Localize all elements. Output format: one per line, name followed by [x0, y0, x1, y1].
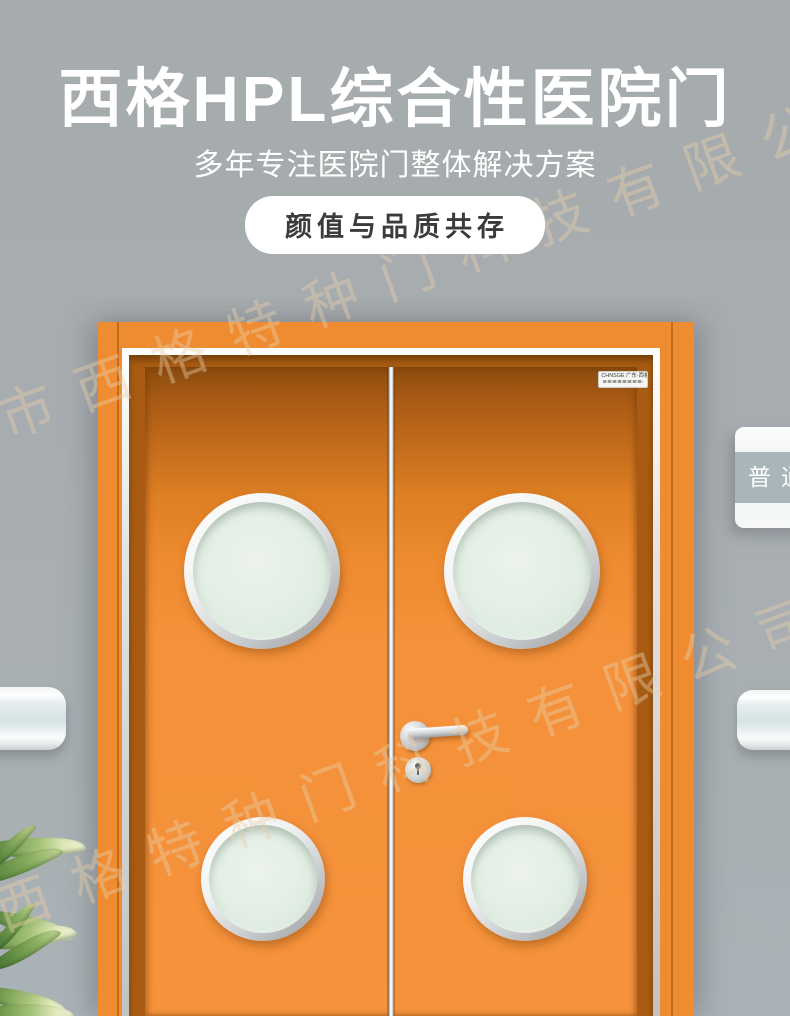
page-title: 西格HPL综合性医院门 — [0, 48, 790, 140]
brand-plate: CHNSGE 广东·西格 — [598, 371, 648, 388]
plant — [0, 826, 122, 1016]
page-subtitle: 多年专注医院门整体解决方案 — [0, 140, 790, 184]
window-glass — [471, 825, 579, 933]
frame-groove-right — [671, 322, 673, 1016]
door-jamb — [129, 355, 653, 1016]
poster-canvas: 西格HPL综合性医院门 多年专注医院门整体解决方案 颜值与品质共存 CHNSGE… — [0, 0, 790, 1016]
quality-badge: 颜值与品质共存 — [245, 196, 545, 254]
room-sign-label: 普通 — [735, 452, 790, 503]
porthole-window-top-right — [444, 493, 600, 649]
porthole-window-bottom-right — [463, 817, 587, 941]
brand-subline — [603, 380, 643, 383]
porthole-window-bottom-left — [201, 817, 325, 941]
porthole-window-top-left — [184, 493, 340, 649]
window-glass — [209, 825, 317, 933]
wall-guard-rail-left — [0, 687, 66, 750]
lock-cylinder — [405, 757, 431, 783]
center-stile — [389, 367, 394, 1016]
window-glass — [453, 502, 591, 640]
wall-guard-rail-right — [737, 690, 790, 750]
hospital-door — [98, 322, 694, 1016]
window-glass — [193, 502, 331, 640]
aluminum-frame — [122, 348, 660, 1016]
room-sign: 普通 — [735, 427, 790, 528]
brand-label: CHNSGE 广东·西格 — [601, 372, 644, 379]
